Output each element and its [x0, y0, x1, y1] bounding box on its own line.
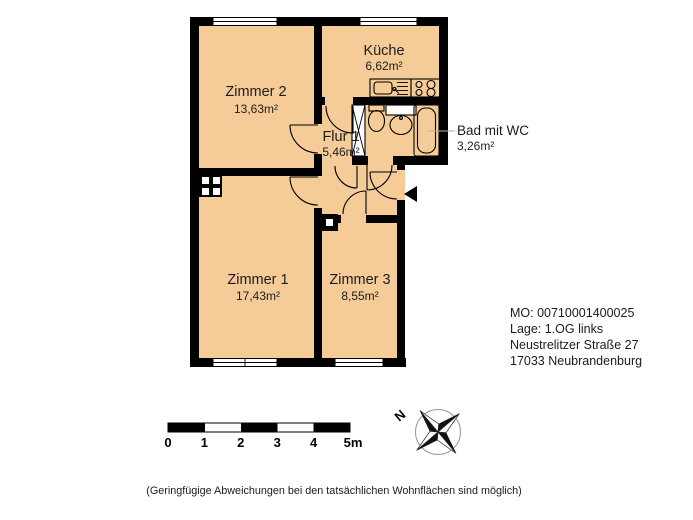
- info-block: MO: 00710001400025 Lage: 1.OG links Neus…: [510, 306, 642, 368]
- window-kueche: [360, 18, 417, 26]
- info-mo: MO: 00710001400025: [510, 306, 634, 320]
- area-zimmer1: 17,43m²: [236, 289, 280, 303]
- scale-label-0: 0: [164, 435, 171, 450]
- washer-icon: [386, 105, 416, 115]
- info-city: 17033 Neubrandenburg: [510, 354, 642, 368]
- scale-bar: 0 1 2 3 4 5m: [164, 423, 362, 450]
- window-zimmer1: [213, 359, 277, 367]
- area-bad: 3,26m²: [457, 139, 494, 153]
- window-zimmer2: [213, 18, 277, 26]
- label-zimmer1: Zimmer 1: [227, 272, 288, 288]
- area-kueche: 6,62m²: [365, 59, 402, 73]
- compass-north-label: N: [392, 407, 409, 425]
- scale-label-5m: 5m: [344, 435, 363, 450]
- info-street: Neustrelitzer Straße 27: [510, 338, 639, 352]
- scale-label-1: 1: [201, 435, 208, 450]
- window-zimmer3: [335, 359, 383, 367]
- disclaimer-text: (Geringfügige Abweichungen bei den tatsä…: [146, 485, 522, 497]
- label-flur: Flur 1: [322, 129, 359, 145]
- scale-label-4: 4: [310, 435, 318, 450]
- compass-icon: N: [392, 407, 461, 455]
- scale-label-2: 2: [237, 435, 244, 450]
- entrance-arrow-icon: [404, 186, 417, 202]
- label-kueche: Küche: [363, 43, 404, 59]
- label-zimmer2: Zimmer 2: [225, 84, 286, 100]
- shaft-icon: [321, 214, 338, 231]
- chimney-icon: [198, 173, 222, 197]
- area-flur: 5,46m²: [322, 145, 359, 159]
- area-zimmer3: 8,55m²: [341, 289, 378, 303]
- label-zimmer3: Zimmer 3: [329, 272, 390, 288]
- floor-plan-drawing: Zimmer 2 13,63m² Küche 6,62m² Flur 1 5,4…: [0, 0, 693, 520]
- scale-label-3: 3: [274, 435, 281, 450]
- floor-plan-page: Zimmer 2 13,63m² Küche 6,62m² Flur 1 5,4…: [0, 0, 693, 520]
- label-bad: Bad mit WC: [457, 123, 529, 138]
- info-lage: Lage: 1.OG links: [510, 322, 603, 336]
- area-zimmer2: 13,63m²: [234, 102, 278, 116]
